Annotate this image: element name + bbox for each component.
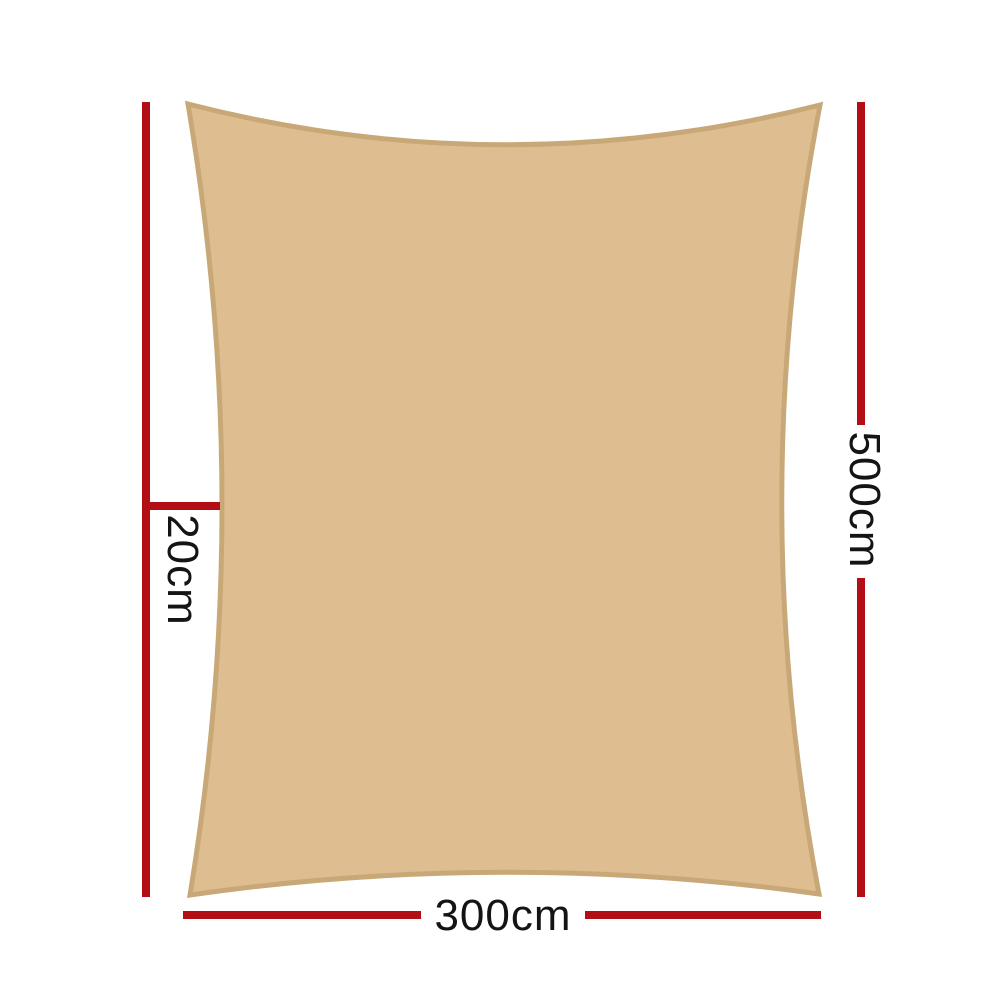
shade-sail-shape: [188, 104, 820, 895]
width-dimension-label: 300cm: [434, 891, 571, 941]
shade-sail-dimension-diagram: 20cm 500cm 300cm: [0, 0, 1000, 1000]
curve-depth-label: 20cm: [157, 514, 207, 626]
height-dimension-label: 500cm: [839, 431, 889, 568]
